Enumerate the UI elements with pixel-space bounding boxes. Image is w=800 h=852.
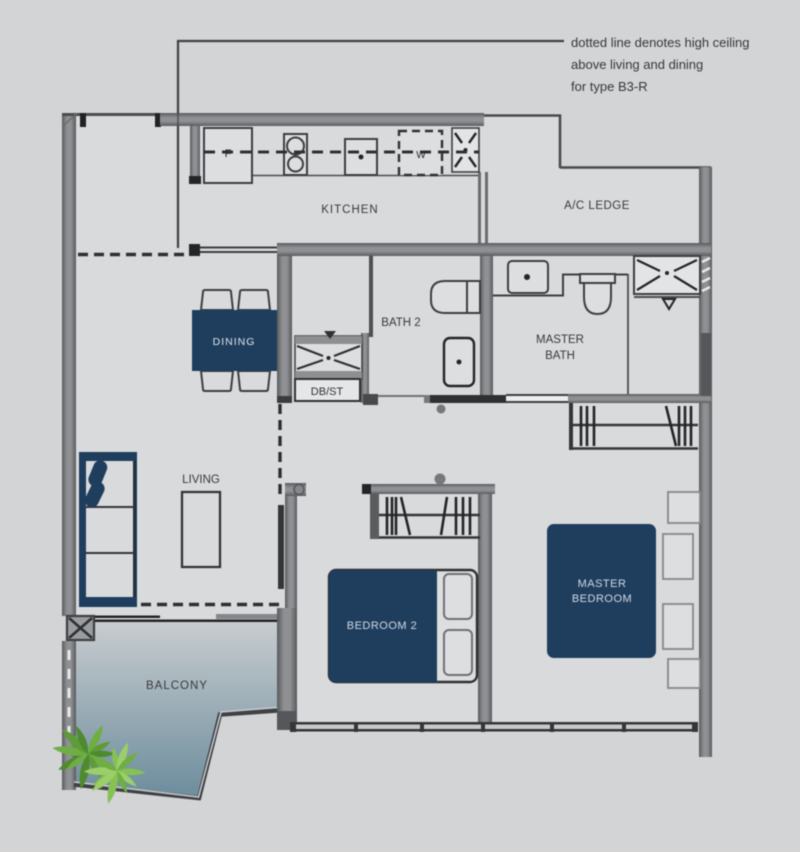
svg-text:DINING: DINING: [213, 336, 256, 348]
svg-text:BEDROOM 2: BEDROOM 2: [347, 620, 418, 632]
svg-text:KITCHEN: KITCHEN: [321, 204, 378, 216]
svg-text:W: W: [416, 150, 426, 161]
svg-text:DB/ST: DB/ST: [311, 386, 344, 398]
svg-text:MASTER: MASTER: [578, 578, 627, 590]
svg-text:BATH: BATH: [545, 350, 575, 362]
svg-text:F: F: [225, 148, 232, 160]
svg-text:BEDROOM: BEDROOM: [572, 593, 632, 605]
svg-text:MASTER: MASTER: [536, 334, 584, 346]
svg-text:BATH 2: BATH 2: [381, 317, 420, 329]
svg-text:dotted line denotes high ceili: dotted line denotes high ceiling: [571, 35, 750, 50]
svg-text:LIVING: LIVING: [182, 474, 220, 486]
svg-text:above living and dining: above living and dining: [571, 57, 703, 72]
svg-text:for type B3-R: for type B3-R: [571, 79, 648, 94]
svg-text:A/C LEDGE: A/C LEDGE: [564, 200, 630, 212]
svg-text:BALCONY: BALCONY: [146, 680, 208, 692]
